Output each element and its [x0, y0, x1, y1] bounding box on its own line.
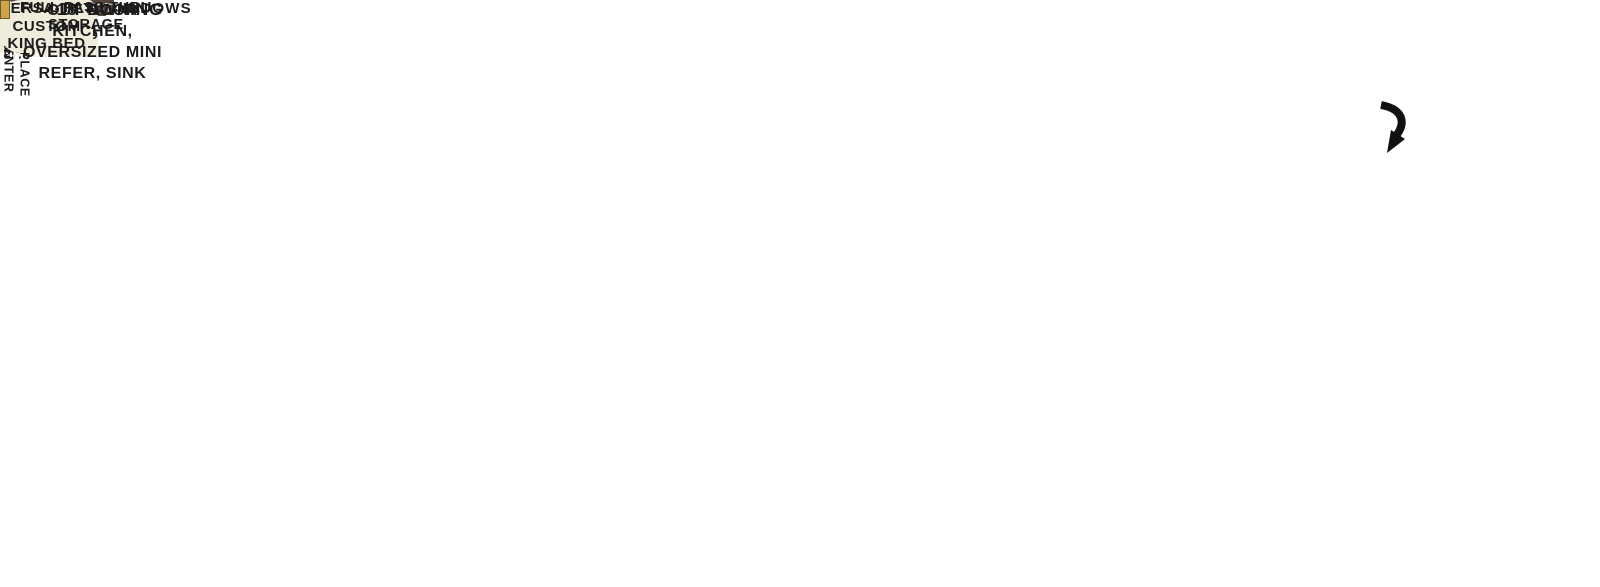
storage-callout-arrow: [1345, 101, 1425, 157]
outdoor-kitchen-label: OUT DOOR KITCHEN, OVERSIZED MINI REFER, …: [0, 0, 185, 84]
floorplan-canvas: 30 x 74 BUNK VERSA-QUEEN CLOSET ENT. CEN…: [0, 0, 1600, 587]
